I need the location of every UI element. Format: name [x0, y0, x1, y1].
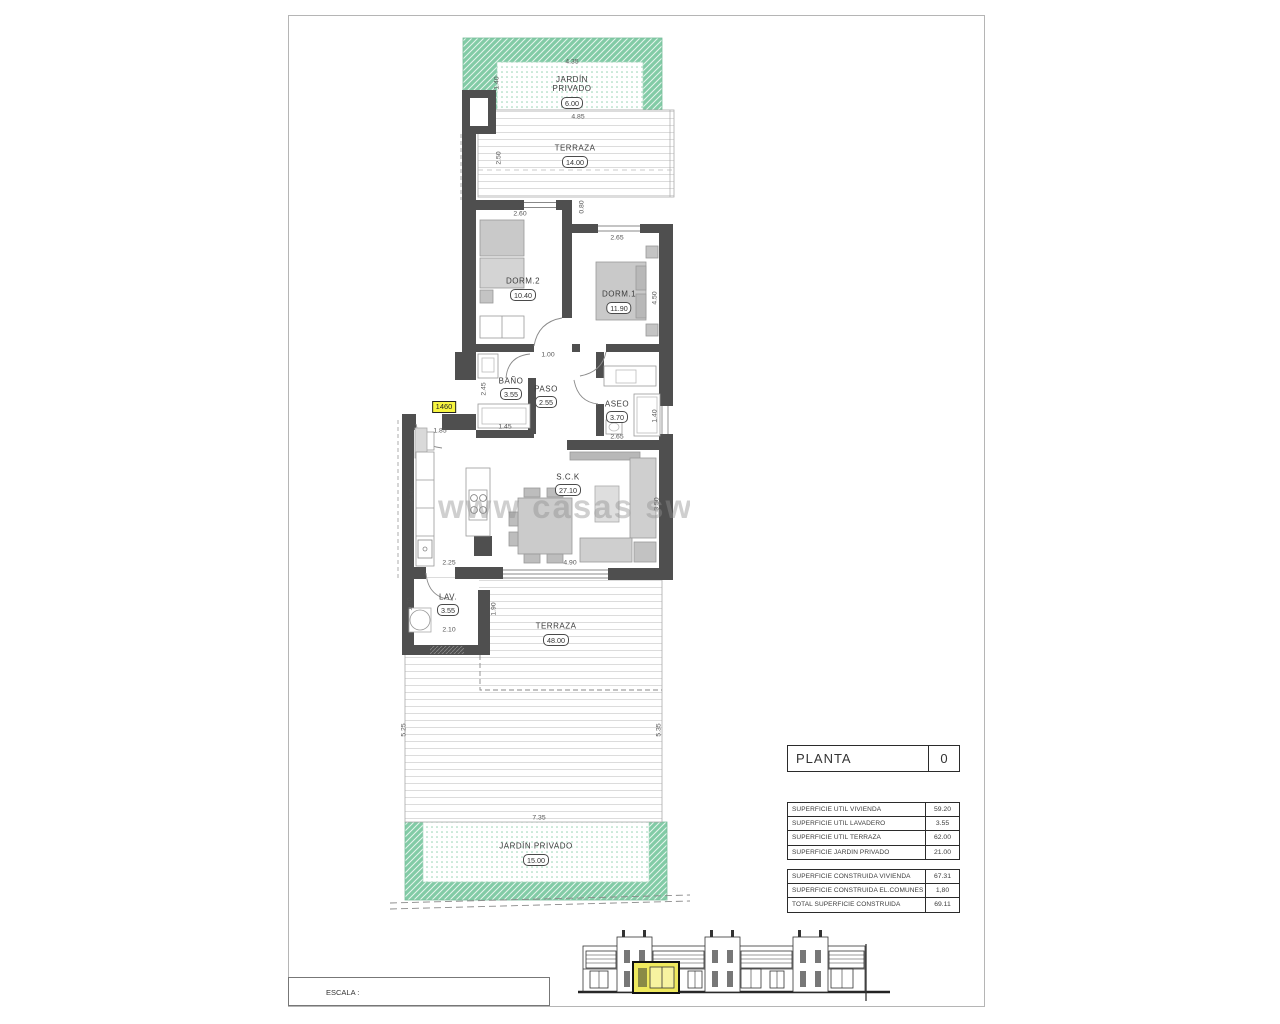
row-label: SUPERFICIE ÚTIL TERRAZA [788, 834, 925, 841]
drawing-sheet: N 0 1 2 3 4 5 JARDÍN PRIVADO 6.00 TERRAZ… [0, 0, 1280, 1024]
row-label: SUPERFICIE CONSTRUIDA VIVIENDA [788, 873, 925, 880]
room-label-paso: PASO [534, 385, 558, 394]
area-badge-terraza-main: 48.00 [543, 634, 569, 646]
row-value: 3.55 [925, 817, 959, 830]
row-value: 59.20 [925, 803, 959, 816]
dimension-label: 2.45 [481, 382, 488, 395]
dimension-label: 4.35 [565, 59, 578, 66]
area-badge-bano: 3.55 [500, 388, 522, 400]
area-badge-sck: 27.10 [555, 484, 581, 496]
row-value: 21.00 [925, 846, 959, 859]
area-badge-dorm1: 11.90 [606, 302, 631, 314]
room-label-terraza-main: TERRAZA [536, 622, 577, 631]
construction-table: SUPERFICIE CONSTRUIDA VIVIENDA 67.31 SUP… [787, 869, 960, 913]
area-badge-lav: 3.55 [437, 604, 459, 616]
dimension-label: 1.45 [498, 424, 511, 431]
row-label: SUPERFICIE JARDÍN PRIVADO [788, 849, 925, 856]
row-value: 1,80 [925, 884, 959, 897]
dimension-label: 4.50 [652, 291, 659, 304]
room-label-aseo: ASEO [605, 400, 629, 409]
area-badge-paso: 2.55 [535, 396, 557, 408]
terrace-top-deck [478, 110, 674, 197]
dimension-label: 0.80 [579, 200, 586, 213]
floor-title-label: PLANTA [788, 751, 928, 766]
row-label: SUPERFICIE ÚTIL VIVIENDA [788, 806, 925, 813]
room-label-dorm2: DORM.2 [506, 277, 540, 286]
dimension-label: 1.70 [407, 597, 414, 610]
floor-title-box: PLANTA 0 [787, 745, 960, 772]
dimension-label: 2.65 [610, 434, 623, 441]
surface-table: SUPERFICIE ÚTIL VIVIENDA 59.20 SUPERFICI… [787, 802, 960, 860]
dimension-label: 2.10 [442, 627, 455, 634]
highlighted-unit [633, 962, 679, 993]
room-label-lav: LAV. [439, 593, 457, 602]
area-badge-aseo: 3.70 [606, 411, 628, 423]
dimension-label: 4.10 [409, 488, 416, 501]
area-badge-jardin-bottom: 15.00 [523, 854, 549, 866]
building-elevation [578, 930, 890, 1001]
row-label: TOTAL SUPERFICIE CONSTRUIDA [788, 901, 925, 908]
dimension-label: 5.35 [656, 723, 663, 736]
floor-title-number: 0 [928, 746, 959, 771]
dimension-label: 1.85 [433, 428, 446, 435]
room-label-jardin-bottom: JARDÍN PRIVADO [499, 842, 573, 851]
row-value: 67.31 [925, 870, 959, 883]
room-label-bano: BAÑO [499, 377, 524, 386]
table-row: SUPERFICIE CONSTRUIDA VIVIENDA 67.31 [788, 870, 959, 884]
dimension-label: 1.40 [652, 409, 659, 422]
row-value: 69.11 [925, 898, 959, 911]
dimension-label: 2.60 [513, 211, 526, 218]
dimension-label: 4.85 [571, 114, 584, 121]
area-badge-dorm2: 10.40 [510, 289, 536, 301]
room-label-sck: S.C.K [556, 473, 579, 482]
table-row: SUPERFICIE CONSTRUIDA EL.COMUNES 1,80 [788, 884, 959, 898]
row-label: SUPERFICIE CONSTRUIDA EL.COMUNES [788, 887, 925, 894]
room-label-jardin-top: JARDÍN PRIVADO [553, 75, 592, 93]
dimension-label: 4.90 [563, 560, 576, 567]
floor-plan-svg: N 0 1 2 3 4 5 [0, 0, 1280, 1024]
dimension-label: 7.35 [532, 815, 545, 822]
room-label-dorm1: DORM.1 [602, 290, 636, 299]
scale-label: ESCALA : [326, 988, 359, 997]
row-value: 62.00 [925, 831, 959, 844]
dimension-label: 1.90 [491, 602, 498, 615]
dimension-label: 5.25 [401, 723, 408, 736]
room-label-terraza-top: TERRAZA [555, 144, 596, 153]
dimension-label: 2.50 [496, 151, 503, 164]
area-badge-terraza-top: 14.00 [562, 156, 588, 168]
table-row: SUPERFICIE ÚTIL VIVIENDA 59.20 [788, 803, 959, 817]
dimension-label: 3.50 [654, 497, 661, 510]
dimension-label: 1.00 [541, 352, 554, 359]
row-label: SUPERFICIE ÚTIL LAVADERO [788, 820, 925, 827]
area-badge-jardin-top: 6.00 [561, 97, 583, 109]
table-row: SUPERFICIE JARDÍN PRIVADO 21.00 [788, 846, 959, 859]
dimension-label: 1.40 [494, 76, 501, 89]
unit-number-badge: 1460 [432, 401, 456, 413]
dimension-label: 2.65 [610, 235, 623, 242]
dimension-label: 2.25 [442, 560, 455, 567]
table-row: TOTAL SUPERFICIE CONSTRUIDA 69.11 [788, 898, 959, 911]
table-row: SUPERFICIE ÚTIL LAVADERO 3.55 [788, 817, 959, 831]
table-row: SUPERFICIE ÚTIL TERRAZA 62.00 [788, 831, 959, 845]
